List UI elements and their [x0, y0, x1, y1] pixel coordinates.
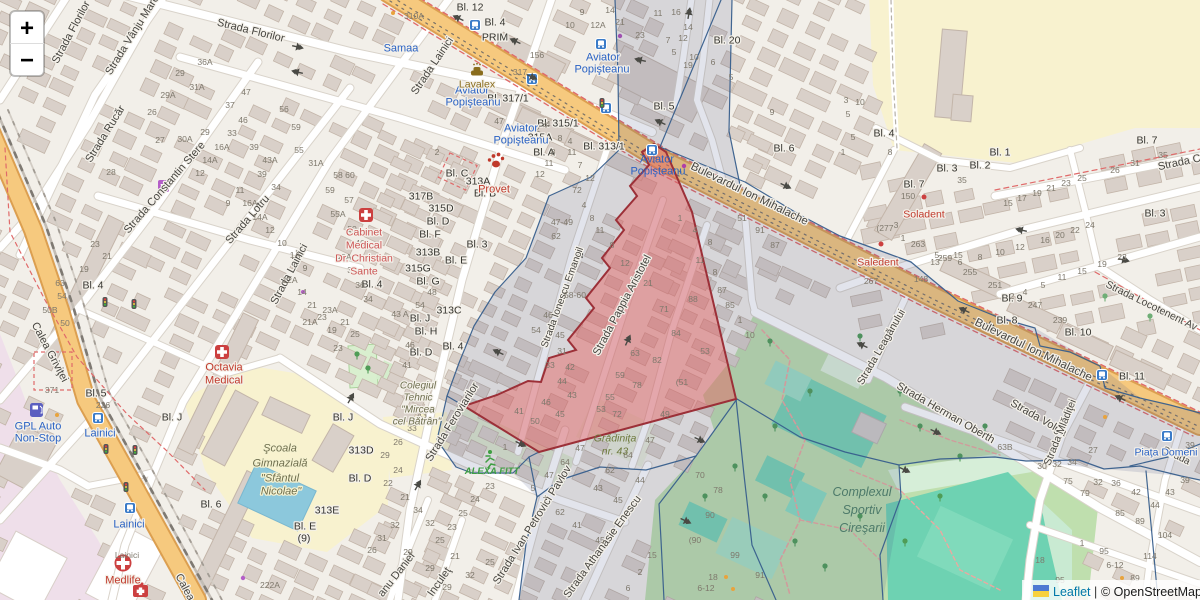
- svg-text:19: 19: [327, 325, 337, 335]
- svg-text:267: 267: [864, 276, 879, 286]
- svg-text:Leaflet: Leaflet: [1053, 585, 1091, 599]
- svg-text:Bl. 1: Bl. 1: [989, 147, 1010, 159]
- svg-text:43: 43: [1165, 487, 1175, 497]
- svg-text:8: 8: [888, 147, 893, 157]
- svg-text:56: 56: [279, 104, 289, 114]
- svg-text:23: 23: [90, 239, 100, 249]
- svg-text:91: 91: [755, 225, 765, 235]
- svg-text:85: 85: [1115, 508, 1125, 518]
- svg-text:25: 25: [485, 557, 495, 567]
- svg-text:Bl. 12: Bl. 12: [457, 2, 484, 14]
- svg-text:Tehnic: Tehnic: [403, 392, 432, 403]
- svg-text:Lavalex: Lavalex: [459, 79, 496, 91]
- svg-text:34: 34: [1067, 457, 1077, 467]
- svg-text:21: 21: [1046, 183, 1056, 193]
- svg-text:26: 26: [1110, 165, 1120, 175]
- svg-text:8: 8: [551, 147, 556, 157]
- svg-text:Nicolae": Nicolae": [261, 486, 303, 498]
- svg-text:20: 20: [1055, 230, 1065, 240]
- svg-text:8: 8: [708, 237, 713, 247]
- svg-text:43: 43: [567, 390, 577, 400]
- svg-text:44: 44: [635, 475, 645, 485]
- svg-text:11: 11: [568, 147, 577, 157]
- svg-text:15: 15: [1003, 198, 1013, 208]
- svg-text:Bl. J: Bl. J: [162, 412, 182, 424]
- svg-text:Sportiv: Sportiv: [843, 503, 883, 517]
- svg-text:41: 41: [402, 360, 412, 370]
- svg-text:33: 33: [227, 128, 237, 138]
- svg-text:313D: 313D: [348, 445, 374, 457]
- svg-text:22: 22: [1070, 225, 1080, 235]
- svg-text:19: 19: [1097, 259, 1107, 269]
- svg-text:85: 85: [725, 300, 735, 310]
- svg-text:114: 114: [1143, 551, 1157, 561]
- svg-text:35: 35: [957, 175, 967, 185]
- svg-text:32: 32: [465, 570, 475, 580]
- svg-text:39: 39: [249, 142, 259, 152]
- svg-text:21: 21: [400, 492, 410, 502]
- svg-text:23: 23: [317, 312, 327, 322]
- svg-text:54: 54: [57, 291, 67, 301]
- svg-text:26: 26: [147, 107, 157, 117]
- svg-text:156: 156: [530, 50, 545, 60]
- svg-text:31: 31: [557, 346, 567, 356]
- svg-text:148: 148: [914, 274, 929, 284]
- svg-text:Bl. D: Bl. D: [427, 216, 450, 228]
- svg-text:21: 21: [307, 300, 317, 310]
- svg-text:84: 84: [671, 328, 681, 338]
- svg-text:23: 23: [333, 343, 343, 353]
- svg-text:64: 64: [560, 457, 570, 467]
- svg-text:53: 53: [596, 404, 606, 414]
- svg-text:6-12: 6-12: [697, 583, 714, 593]
- svg-text:29: 29: [442, 582, 452, 592]
- svg-text:39: 39: [257, 169, 267, 179]
- svg-text:Bl. 6: Bl. 6: [200, 499, 221, 511]
- svg-text:1A: 1A: [290, 250, 301, 260]
- svg-text:34: 34: [363, 294, 373, 304]
- svg-text:Popişteanu: Popişteanu: [493, 135, 548, 147]
- svg-text:59: 59: [615, 370, 625, 380]
- svg-text:310A: 310A: [404, 11, 424, 21]
- svg-text:247: 247: [1028, 300, 1043, 310]
- svg-text:29: 29: [380, 450, 390, 460]
- svg-text:Bl. 2: Bl. 2: [969, 160, 990, 172]
- svg-text:62: 62: [551, 231, 561, 241]
- svg-text:5: 5: [729, 72, 734, 82]
- svg-text:48: 48: [427, 287, 437, 297]
- svg-text:Bl. 4: Bl. 4: [442, 341, 463, 353]
- svg-text:43A: 43A: [262, 155, 278, 165]
- svg-text:29A: 29A: [160, 90, 176, 100]
- svg-text:31A: 31A: [189, 82, 205, 92]
- svg-text:33: 33: [545, 360, 555, 370]
- svg-text:Medical: Medical: [346, 240, 382, 252]
- svg-text:251: 251: [988, 280, 1003, 290]
- svg-text:49: 49: [660, 409, 670, 419]
- svg-text:46: 46: [541, 397, 551, 407]
- svg-text:87: 87: [717, 285, 727, 295]
- svg-text:23: 23: [1117, 252, 1127, 262]
- svg-text:(277: (277: [876, 223, 893, 233]
- svg-text:8: 8: [558, 133, 563, 143]
- svg-text:Samaa: Samaa: [384, 43, 420, 55]
- svg-text:29: 29: [425, 563, 435, 573]
- svg-text:7: 7: [666, 35, 671, 45]
- svg-text:9: 9: [303, 263, 308, 273]
- svg-text:226: 226: [96, 400, 111, 410]
- svg-text:6: 6: [711, 57, 716, 67]
- svg-text:91: 91: [755, 570, 765, 580]
- svg-text:58-60: 58-60: [564, 290, 586, 300]
- svg-text:Medlife: Medlife: [105, 575, 140, 587]
- svg-text:45: 45: [595, 535, 605, 545]
- svg-text:29: 29: [200, 127, 210, 137]
- svg-text:313B: 313B: [416, 247, 441, 259]
- svg-text:47: 47: [544, 470, 554, 480]
- svg-text:Bl. 313/1: Bl. 313/1: [583, 141, 625, 153]
- svg-text:Non-Stop: Non-Stop: [15, 433, 61, 445]
- svg-text:Complexul: Complexul: [832, 485, 892, 499]
- svg-text:Bl. 6: Bl. 6: [773, 143, 794, 155]
- svg-text:47-49: 47-49: [551, 217, 573, 227]
- svg-text:59: 59: [325, 185, 335, 195]
- svg-text:Bl. 7: Bl. 7: [903, 179, 924, 191]
- svg-text:Piaţa Domeni: Piaţa Domeni: [1134, 447, 1197, 459]
- svg-text:5: 5: [1041, 280, 1046, 290]
- svg-text:Bl. F: Bl. F: [419, 229, 441, 241]
- svg-text:Bl. J: Bl. J: [333, 412, 353, 424]
- svg-text:12: 12: [620, 258, 630, 268]
- svg-text:26: 26: [393, 437, 403, 447]
- svg-text:78: 78: [632, 380, 642, 390]
- svg-text:2: 2: [435, 147, 440, 157]
- svg-text:29: 29: [175, 68, 185, 78]
- svg-text:78: 78: [713, 485, 723, 495]
- svg-text:24: 24: [1085, 220, 1095, 230]
- svg-text:12: 12: [1015, 242, 1025, 252]
- svg-text:1: 1: [901, 233, 906, 243]
- svg-text:46: 46: [405, 340, 415, 350]
- svg-text:104: 104: [1158, 530, 1173, 540]
- svg-text:62: 62: [605, 465, 615, 475]
- svg-text:63: 63: [55, 278, 65, 288]
- svg-text:19: 19: [79, 264, 89, 274]
- svg-text:Octavia: Octavia: [205, 362, 243, 374]
- svg-text:11: 11: [1058, 272, 1067, 282]
- svg-text:1: 1: [841, 147, 846, 157]
- svg-text:Bl. 10: Bl. 10: [1065, 327, 1092, 339]
- svg-text:1: 1: [738, 315, 743, 325]
- svg-text:16A: 16A: [242, 198, 258, 208]
- svg-text:21: 21: [340, 317, 350, 327]
- svg-text:Bl. G: Bl. G: [416, 276, 439, 288]
- svg-text:Bl. E: Bl. E: [445, 255, 467, 267]
- svg-text:58 60: 58 60: [333, 170, 355, 180]
- svg-text:41: 41: [514, 406, 524, 416]
- svg-text:43: 43: [593, 483, 603, 493]
- svg-text:19: 19: [683, 60, 693, 70]
- svg-text:29: 29: [403, 547, 413, 557]
- svg-text:46: 46: [543, 310, 553, 320]
- svg-text:ALEXA FITT: ALEXA FITT: [464, 466, 521, 477]
- svg-text:25: 25: [350, 329, 360, 339]
- svg-text:12: 12: [535, 169, 545, 179]
- svg-text:315G: 315G: [405, 263, 431, 275]
- svg-text:Gimnazială: Gimnazială: [252, 458, 307, 470]
- svg-text:2: 2: [1010, 291, 1015, 301]
- svg-text:315D: 315D: [428, 203, 454, 215]
- svg-text:+: +: [20, 15, 34, 42]
- svg-text:89: 89: [1135, 516, 1145, 526]
- svg-text:4: 4: [693, 225, 698, 235]
- svg-text:1: 1: [503, 442, 508, 452]
- svg-text:2: 2: [638, 567, 643, 577]
- svg-text:Grădiniţa: Grădiniţa: [594, 433, 637, 445]
- svg-text:59: 59: [291, 122, 301, 132]
- svg-text:99: 99: [730, 550, 740, 560]
- svg-text:15: 15: [953, 250, 963, 260]
- svg-text:22: 22: [383, 478, 393, 488]
- svg-text:7: 7: [543, 495, 548, 505]
- svg-text:Bl. 3: Bl. 3: [1144, 208, 1165, 220]
- svg-text:(90: (90: [689, 535, 702, 545]
- svg-text:Dr. Christian: Dr. Christian: [335, 253, 393, 265]
- svg-text:32: 32: [425, 518, 435, 528]
- svg-text:23: 23: [1061, 178, 1071, 188]
- svg-text:Soladent: Soladent: [903, 209, 945, 221]
- svg-text:14: 14: [683, 22, 693, 32]
- svg-text:12A: 12A: [590, 20, 606, 30]
- svg-text:30A: 30A: [177, 134, 193, 144]
- svg-text:32: 32: [1052, 459, 1062, 469]
- svg-text:5: 5: [846, 109, 851, 119]
- svg-text:72: 72: [612, 409, 622, 419]
- svg-text:263: 263: [911, 239, 926, 249]
- svg-text:(51: (51: [676, 377, 689, 387]
- svg-text:21: 21: [102, 251, 112, 261]
- svg-text:16: 16: [1040, 235, 1050, 245]
- svg-text:71: 71: [659, 304, 669, 314]
- svg-text:(9): (9): [298, 533, 311, 545]
- svg-text:259: 259: [938, 253, 953, 263]
- svg-text:150: 150: [901, 191, 916, 201]
- svg-text:3: 3: [894, 220, 899, 230]
- svg-text:27: 27: [1088, 445, 1098, 455]
- svg-text:GPL Auto: GPL Auto: [15, 421, 62, 433]
- svg-text:63B: 63B: [997, 442, 1013, 452]
- svg-text:6: 6: [626, 583, 631, 593]
- svg-text:26: 26: [367, 545, 377, 555]
- svg-text:23: 23: [485, 481, 495, 491]
- svg-text:12: 12: [265, 225, 275, 235]
- svg-text:Lainici: Lainici: [115, 550, 139, 560]
- svg-text:54: 54: [531, 325, 541, 335]
- svg-text:Bl. E: Bl. E: [294, 521, 316, 533]
- svg-text:© OpenStreetMap: © OpenStreetMap: [1101, 585, 1200, 599]
- svg-text:36: 36: [1111, 478, 1121, 488]
- svg-text:23: 23: [635, 30, 645, 40]
- svg-text:PRIM: PRIM: [482, 32, 508, 44]
- svg-text:34: 34: [413, 505, 423, 515]
- svg-text:39: 39: [1180, 475, 1190, 485]
- svg-text:Bl. 8: Bl. 8: [996, 315, 1017, 327]
- svg-text:72: 72: [572, 185, 582, 195]
- svg-text:45: 45: [555, 330, 565, 340]
- svg-text:1: 1: [678, 213, 683, 223]
- svg-text:4: 4: [543, 120, 548, 130]
- svg-text:4: 4: [568, 136, 573, 146]
- svg-text:7: 7: [578, 160, 583, 170]
- svg-text:Bl. D: Bl. D: [349, 473, 372, 485]
- svg-text:25: 25: [458, 508, 468, 518]
- svg-text:16A: 16A: [214, 142, 230, 152]
- svg-text:12: 12: [585, 173, 595, 183]
- svg-text:50B: 50B: [42, 305, 58, 315]
- svg-text:Sante: Sante: [350, 266, 378, 278]
- svg-text:53: 53: [700, 346, 710, 356]
- svg-text:cel Bătrân": cel Bătrân": [393, 416, 442, 427]
- svg-text:19: 19: [1032, 188, 1042, 198]
- svg-text:42: 42: [1131, 487, 1141, 497]
- svg-text:43 A: 43 A: [391, 309, 408, 319]
- svg-text:11: 11: [236, 185, 245, 195]
- svg-text:Şcoala: Şcoala: [263, 443, 297, 455]
- svg-text:55A: 55A: [330, 209, 346, 219]
- svg-text:50: 50: [530, 416, 540, 426]
- svg-text:21A: 21A: [302, 317, 318, 327]
- svg-text:47: 47: [645, 435, 655, 445]
- svg-text:Lainici: Lainici: [113, 519, 144, 531]
- svg-text:"Mircea: "Mircea: [401, 404, 435, 415]
- svg-text:Popişteanu: Popişteanu: [445, 97, 500, 109]
- svg-text:15: 15: [647, 550, 657, 560]
- svg-text:|: |: [1094, 585, 1097, 599]
- svg-text:63: 63: [630, 348, 640, 358]
- svg-text:Bl. 5: Bl. 5: [85, 388, 106, 400]
- svg-text:5: 5: [531, 483, 536, 493]
- svg-text:14: 14: [297, 287, 307, 297]
- svg-text:Bl. 7: Bl. 7: [1136, 135, 1157, 147]
- svg-text:Lainici: Lainici: [84, 428, 115, 440]
- svg-text:11: 11: [696, 255, 705, 265]
- svg-text:46: 46: [238, 115, 248, 125]
- svg-text:95: 95: [1099, 546, 1109, 556]
- svg-text:47: 47: [575, 443, 585, 453]
- svg-text:21: 21: [450, 551, 460, 561]
- svg-text:Medical: Medical: [205, 375, 243, 387]
- svg-text:Saledent: Saledent: [857, 257, 899, 269]
- svg-text:8: 8: [610, 240, 615, 250]
- svg-text:6-12: 6-12: [1106, 560, 1123, 570]
- svg-text:371: 371: [45, 385, 60, 395]
- svg-text:"Sfântul: "Sfântul: [261, 473, 300, 485]
- svg-text:88: 88: [688, 294, 698, 304]
- svg-text:Popişteanu: Popişteanu: [630, 166, 685, 178]
- svg-text:10: 10: [995, 247, 1005, 257]
- svg-text:11: 11: [545, 158, 554, 168]
- svg-text:239: 239: [1053, 315, 1068, 325]
- svg-text:5: 5: [851, 132, 856, 142]
- svg-text:Bl. 4: Bl. 4: [873, 128, 894, 140]
- svg-text:9: 9: [226, 198, 231, 208]
- svg-text:47: 47: [494, 116, 504, 126]
- svg-text:75: 75: [1063, 476, 1073, 486]
- svg-text:10: 10: [277, 238, 287, 248]
- svg-text:44: 44: [1150, 500, 1160, 510]
- svg-text:317B: 317B: [409, 191, 434, 203]
- svg-text:54: 54: [415, 300, 425, 310]
- svg-text:23: 23: [447, 522, 457, 532]
- svg-text:1: 1: [1080, 538, 1085, 548]
- svg-text:3: 3: [844, 95, 849, 105]
- svg-text:44: 44: [557, 376, 567, 386]
- svg-text:Provet: Provet: [478, 184, 510, 196]
- svg-text:32: 32: [390, 520, 400, 530]
- svg-text:41: 41: [572, 520, 582, 530]
- svg-text:31A: 31A: [308, 158, 324, 168]
- svg-text:Bl. 20: Bl. 20: [714, 35, 741, 47]
- svg-text:Aviator: Aviator: [504, 123, 538, 135]
- svg-text:5: 5: [672, 47, 677, 57]
- svg-text:Colegiul: Colegiul: [400, 380, 437, 391]
- svg-text:55: 55: [605, 392, 615, 402]
- svg-text:87: 87: [770, 240, 780, 250]
- svg-text:Bl. 5: Bl. 5: [653, 101, 674, 113]
- svg-text:4: 4: [1023, 287, 1028, 297]
- svg-text:62: 62: [555, 507, 565, 517]
- svg-text:15: 15: [1077, 266, 1087, 276]
- svg-text:90: 90: [705, 510, 715, 520]
- svg-text:21: 21: [615, 17, 625, 27]
- svg-text:12: 12: [195, 168, 205, 178]
- svg-text:9: 9: [770, 107, 775, 117]
- svg-text:34: 34: [271, 182, 281, 192]
- svg-text:51: 51: [737, 213, 747, 223]
- svg-text:55: 55: [294, 145, 304, 155]
- svg-text:Bl. 4: Bl. 4: [484, 17, 505, 29]
- svg-text:313E: 313E: [315, 505, 340, 517]
- svg-text:45: 45: [613, 495, 623, 505]
- svg-text:10: 10: [565, 20, 575, 30]
- svg-text:18: 18: [708, 572, 718, 582]
- svg-text:10: 10: [855, 97, 865, 107]
- svg-text:Aviator: Aviator: [640, 154, 674, 166]
- svg-text:222A: 222A: [260, 580, 280, 590]
- svg-text:11: 11: [654, 8, 663, 18]
- svg-text:31: 31: [1130, 158, 1140, 168]
- svg-text:Bl. 3: Bl. 3: [936, 163, 957, 175]
- svg-text:11: 11: [596, 225, 605, 235]
- svg-text:21: 21: [643, 278, 653, 288]
- svg-text:16: 16: [671, 7, 681, 17]
- svg-text:30: 30: [1037, 461, 1047, 471]
- svg-text:nr. 43: nr. 43: [602, 446, 629, 458]
- svg-text:70: 70: [695, 470, 705, 480]
- svg-text:79: 79: [1080, 488, 1090, 498]
- svg-text:25: 25: [435, 535, 445, 545]
- svg-text:−: −: [20, 47, 34, 74]
- svg-text:12A: 12A: [282, 275, 298, 285]
- svg-text:Bl. J: Bl. J: [410, 313, 430, 325]
- svg-text:82: 82: [652, 355, 662, 365]
- svg-text:35: 35: [1158, 150, 1168, 160]
- svg-text:10: 10: [745, 330, 755, 340]
- svg-text:42: 42: [565, 362, 575, 372]
- svg-text:14: 14: [605, 5, 615, 15]
- svg-text:25: 25: [1077, 173, 1087, 183]
- svg-text:17: 17: [1017, 193, 1027, 203]
